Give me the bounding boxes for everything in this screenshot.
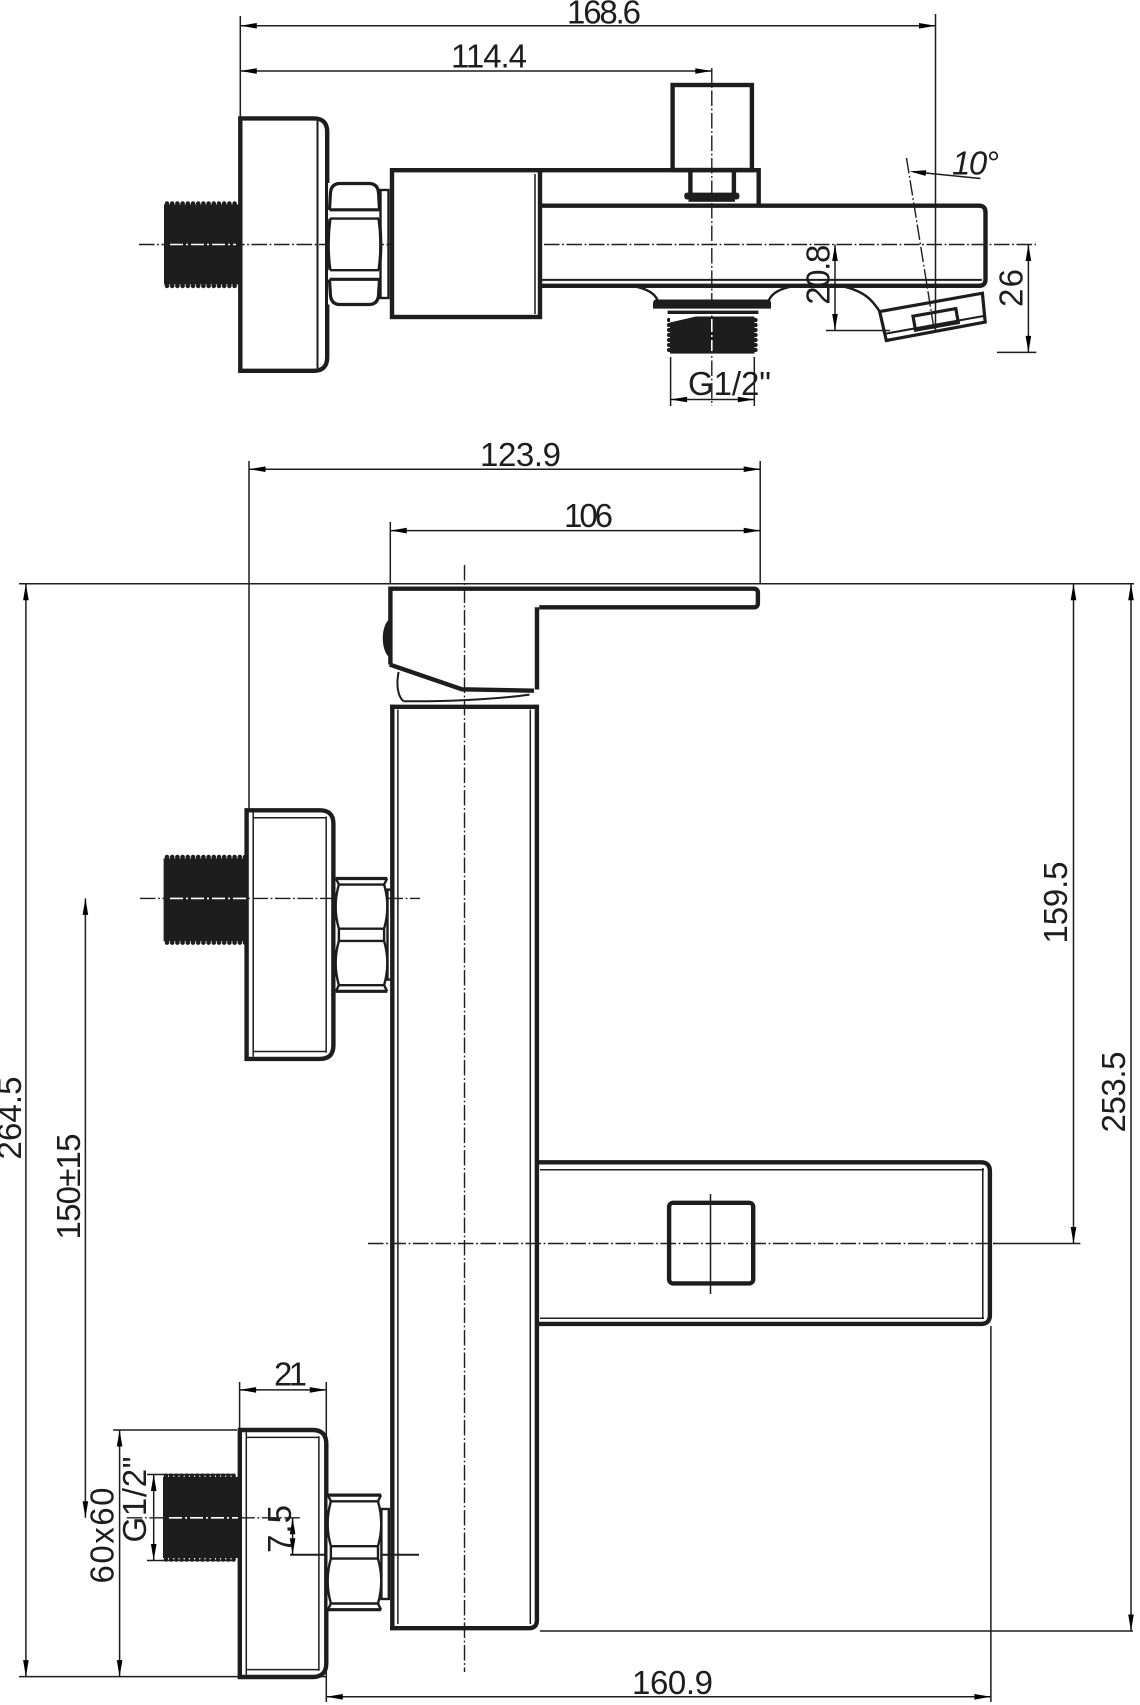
svg-text:10°: 10° <box>952 145 999 182</box>
svg-text:G1/2": G1/2" <box>116 1457 153 1543</box>
svg-text:20.8: 20.8 <box>800 245 837 305</box>
svg-text:G1/2": G1/2" <box>688 365 771 402</box>
svg-text:264.5: 264.5 <box>0 1077 28 1160</box>
svg-text:106: 106 <box>564 497 613 534</box>
svg-text:114.4: 114.4 <box>451 38 527 75</box>
svg-text:253.5: 253.5 <box>1095 1052 1132 1133</box>
svg-text:159.5: 159.5 <box>1037 862 1074 944</box>
svg-text:7.5: 7.5 <box>261 1505 298 1553</box>
svg-text:160.9: 160.9 <box>632 1664 713 1701</box>
svg-text:123.9: 123.9 <box>480 436 561 473</box>
svg-text:60x60: 60x60 <box>84 1488 121 1584</box>
svg-text:168.6: 168.6 <box>567 0 641 31</box>
svg-text:21: 21 <box>274 1356 307 1393</box>
svg-text:150±15: 150±15 <box>50 1134 87 1240</box>
svg-text:26: 26 <box>993 269 1030 307</box>
